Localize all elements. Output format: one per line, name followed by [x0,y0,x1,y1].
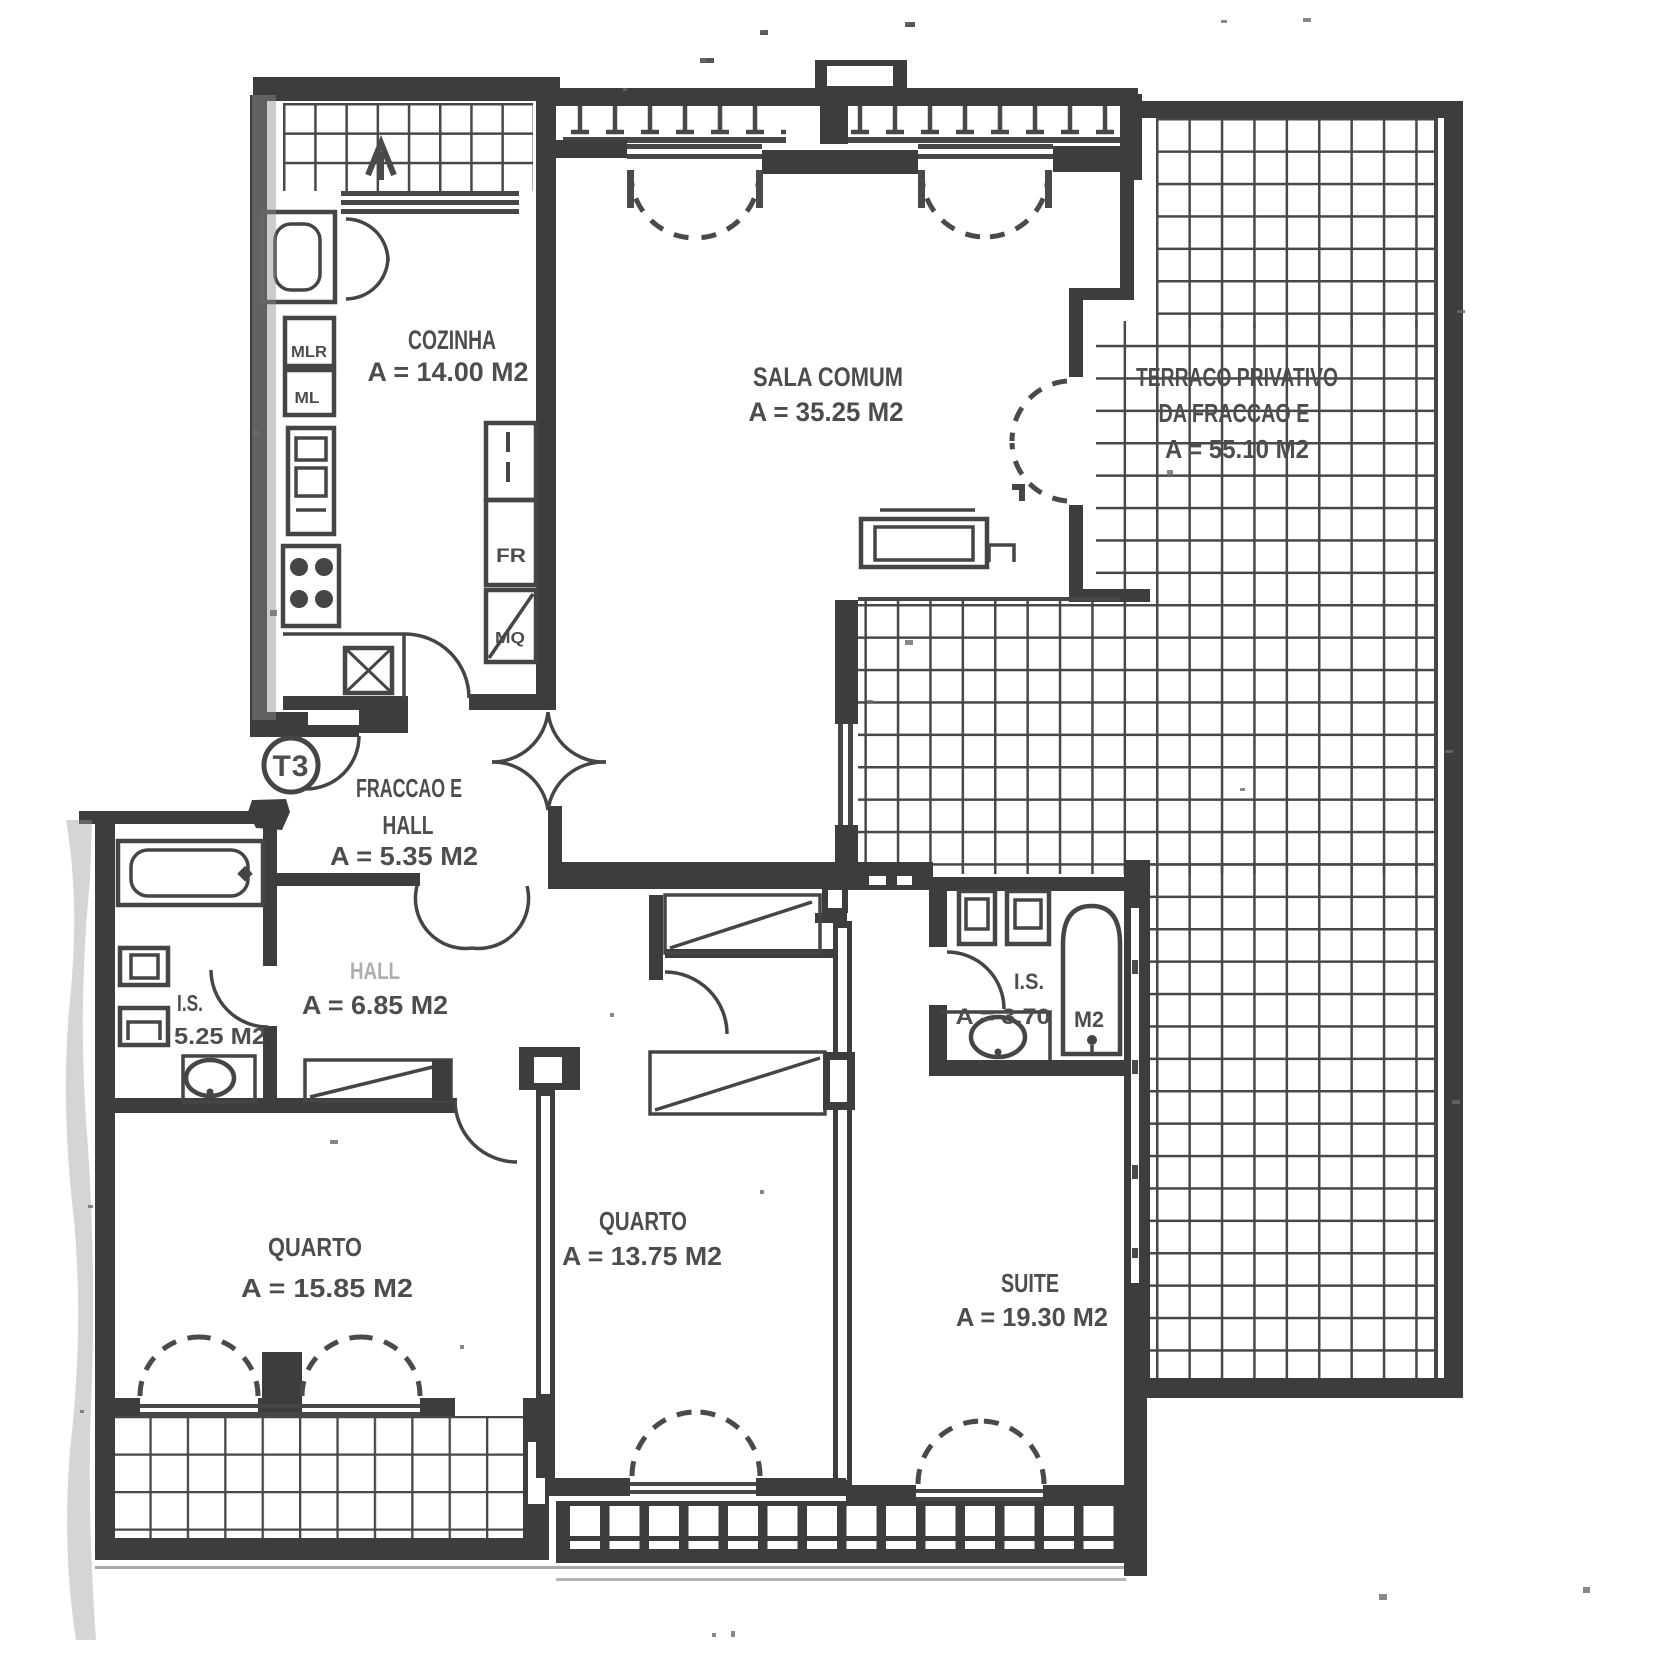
svg-text:M2: M2 [1074,1007,1104,1032]
svg-text:I.S.: I.S. [1014,969,1044,994]
svg-text:MQ: MQ [495,630,525,647]
svg-text:T3: T3 [272,750,309,783]
svg-text:ML: ML [295,390,320,407]
svg-text:SUITE: SUITE [1001,1268,1059,1298]
svg-text:A = 5.35 M2: A = 5.35 M2 [330,841,478,871]
svg-text:QUARTO: QUARTO [268,1232,362,1262]
svg-text:QUARTO: QUARTO [599,1206,687,1236]
svg-text:A = 14.00 M2: A = 14.00 M2 [368,357,529,387]
svg-text:I.S.: I.S. [177,990,203,1016]
svg-text:HALL: HALL [383,810,434,840]
svg-text:FR: FR [496,546,526,567]
svg-text:A = 35.25 M2: A = 35.25 M2 [749,397,904,427]
svg-text:SALA COMUM: SALA COMUM [753,362,903,392]
svg-text:A = 13.75 M2: A = 13.75 M2 [562,1241,722,1271]
svg-text:DA FRACCAO E: DA FRACCAO E [1159,398,1310,428]
svg-text:A = 3.70: A = 3.70 [956,1004,1051,1029]
svg-text:FRACCAO E: FRACCAO E [356,773,462,803]
svg-text:MLR: MLR [291,344,327,361]
svg-text:A = 55.10 M2: A = 55.10 M2 [1165,434,1309,464]
svg-text:A = 19.30 M2: A = 19.30 M2 [956,1302,1108,1332]
svg-text:A = 15.85 M2: A = 15.85 M2 [241,1273,413,1303]
svg-text:COZINHA: COZINHA [408,325,496,355]
svg-text:HALL: HALL [350,958,400,985]
svg-text:5.25 M2: 5.25 M2 [174,1023,266,1049]
svg-text:A = 6.85 M2: A = 6.85 M2 [302,990,448,1020]
svg-text:TERRACO PRIVATIVO: TERRACO PRIVATIVO [1136,362,1338,392]
